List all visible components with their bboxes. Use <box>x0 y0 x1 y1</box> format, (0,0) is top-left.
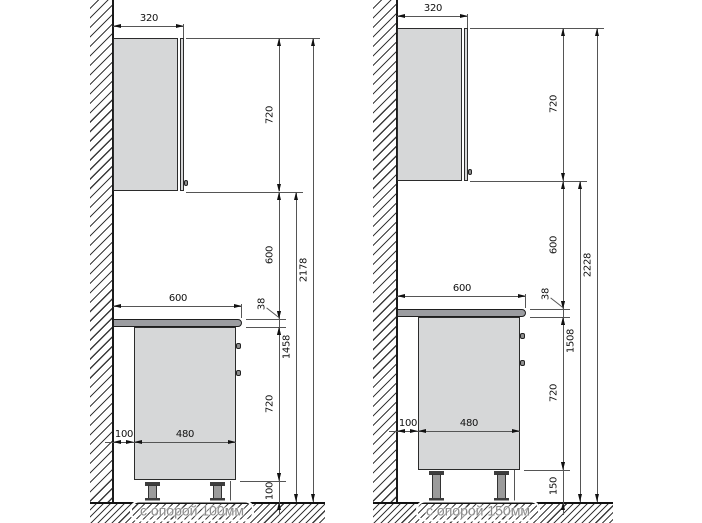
door-bottom-line <box>514 470 515 502</box>
dimension-line <box>563 470 564 502</box>
dimension-line <box>397 16 468 17</box>
cabinet-leg-shaft <box>497 474 506 499</box>
dimension-line <box>563 309 564 317</box>
dimension-label-1508: 1508 <box>566 329 577 353</box>
dimension-label-2228: 2228 <box>583 253 594 277</box>
dimension-label-150: 150 <box>549 477 560 495</box>
dimension-label-600: 600 <box>549 236 560 254</box>
base-cabinet-knob <box>520 360 525 366</box>
dimension-label-100: 100 <box>399 418 417 429</box>
extension-line <box>470 181 587 182</box>
dimension-arrow <box>578 494 582 502</box>
dimension-label-480: 480 <box>460 418 478 429</box>
dimension-label-600: 600 <box>453 283 471 294</box>
dimension-line <box>397 296 526 297</box>
dimension-arrow <box>397 429 405 433</box>
drawing-canvas: 7206003872010014582178320600100480 72060… <box>0 0 702 523</box>
dimension-line <box>563 28 564 181</box>
dimension-label-720: 720 <box>549 384 560 402</box>
dimension-line <box>418 431 520 432</box>
support-caption-100: с опорой 100мм <box>130 501 254 522</box>
countertop <box>397 309 526 317</box>
dimension-arrow <box>561 28 565 36</box>
extension-line <box>530 309 570 310</box>
dimension-arrow <box>595 28 599 36</box>
dimension-arrow <box>410 429 418 433</box>
wall-cabinet <box>397 28 462 181</box>
dimension-line <box>597 28 598 502</box>
dimension-arrow <box>561 462 565 470</box>
dimension-arrow <box>595 494 599 502</box>
support-caption-150: с опорой 150мм <box>416 501 540 522</box>
dimension-line <box>563 181 564 309</box>
dimension-arrow <box>512 429 520 433</box>
diagram-support-150: 7206003872015015082228320600100480 <box>0 0 702 523</box>
extension-line <box>470 28 604 29</box>
base-cabinet-knob <box>520 333 525 339</box>
dimension-arrow <box>561 317 565 325</box>
dimension-arrow <box>397 14 405 18</box>
dimension-arrow <box>561 502 565 510</box>
dimension-arrow <box>561 181 565 189</box>
extension-tick <box>525 294 526 308</box>
extension-tick <box>467 14 468 28</box>
dimension-arrow <box>578 181 582 189</box>
wall-cabinet-knob <box>468 169 472 175</box>
base-cabinet <box>418 317 520 470</box>
dimension-line <box>563 317 564 470</box>
wall-hatch <box>373 0 397 502</box>
dimension-label-320: 320 <box>424 3 442 14</box>
cabinet-leg-shaft <box>432 474 441 499</box>
dimension-arrow <box>397 294 405 298</box>
wall-cabinet-door <box>464 28 468 181</box>
dimension-line <box>580 181 581 502</box>
dimension-arrow <box>418 429 426 433</box>
dimension-label-720: 720 <box>549 95 560 113</box>
dimension-arrow <box>561 173 565 181</box>
